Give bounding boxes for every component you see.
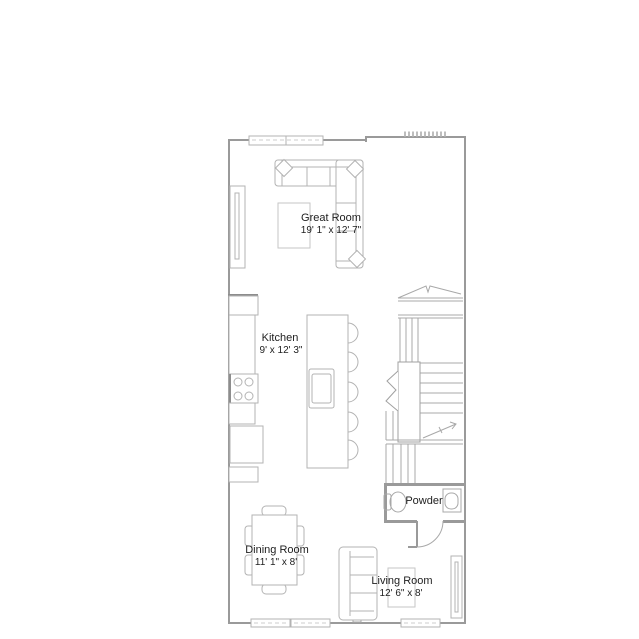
- bar-stool: [348, 412, 358, 432]
- island-sink: [309, 369, 334, 408]
- dining-room-dims: 11' 1" x 8': [255, 557, 297, 568]
- living-room: Living Room 12' 6" x 8': [339, 547, 433, 620]
- bar-stool: [348, 323, 358, 343]
- dining-room-label: Dining Room: [245, 544, 309, 556]
- dining-room: Dining Room 11' 1" x 8': [245, 506, 309, 594]
- living-room-bottom-window: [401, 619, 440, 627]
- great-room: Great Room 19' 1" x 12' 7": [275, 160, 365, 268]
- vanity-sink: [443, 489, 461, 512]
- dining-room-window-1: [251, 619, 290, 627]
- refrigerator: [230, 426, 263, 463]
- dining-room-window-2: [291, 619, 330, 627]
- bar-stool: [348, 440, 358, 460]
- floor-plan-page: Great Room 19' 1" x 12' 7": [0, 0, 639, 639]
- living-room-label: Living Room: [371, 575, 432, 587]
- great-room-dims: 19' 1" x 12' 7": [301, 225, 362, 236]
- bar-stool: [348, 352, 358, 372]
- great-room-top-window: [249, 136, 323, 145]
- great-room-left-window: [230, 186, 245, 268]
- stair-treads: [420, 363, 463, 413]
- kitchen: Kitchen 9' x 12' 3": [228, 295, 358, 482]
- stair-break-symbol: [386, 371, 398, 411]
- living-room-dims: 12' 6" x 8': [380, 588, 423, 599]
- stair-break-top: [398, 286, 461, 298]
- floor-plan-canvas: Great Room 19' 1" x 12' 7": [0, 0, 639, 639]
- kitchen-counter: [229, 467, 258, 482]
- kitchen-label: Kitchen: [262, 332, 299, 344]
- kitchen-island: [307, 315, 358, 468]
- kitchen-counter: [229, 296, 258, 315]
- kitchen-dims: 9' x 12' 3": [260, 345, 303, 356]
- kitchen-counter: [229, 403, 255, 424]
- toilet: [384, 492, 406, 512]
- powder-door: [408, 521, 443, 547]
- great-room-label: Great Room: [301, 212, 361, 224]
- stair-rail-wall: [398, 362, 420, 442]
- living-room-right-window: [451, 556, 462, 618]
- powder-room: Powder: [384, 483, 464, 547]
- staircase: [386, 286, 463, 483]
- stair-direction-arrow: [423, 422, 456, 438]
- stove: [229, 374, 258, 403]
- powder-label: Powder: [405, 495, 443, 507]
- bar-stool: [348, 382, 358, 402]
- kitchen-counter: [229, 315, 255, 374]
